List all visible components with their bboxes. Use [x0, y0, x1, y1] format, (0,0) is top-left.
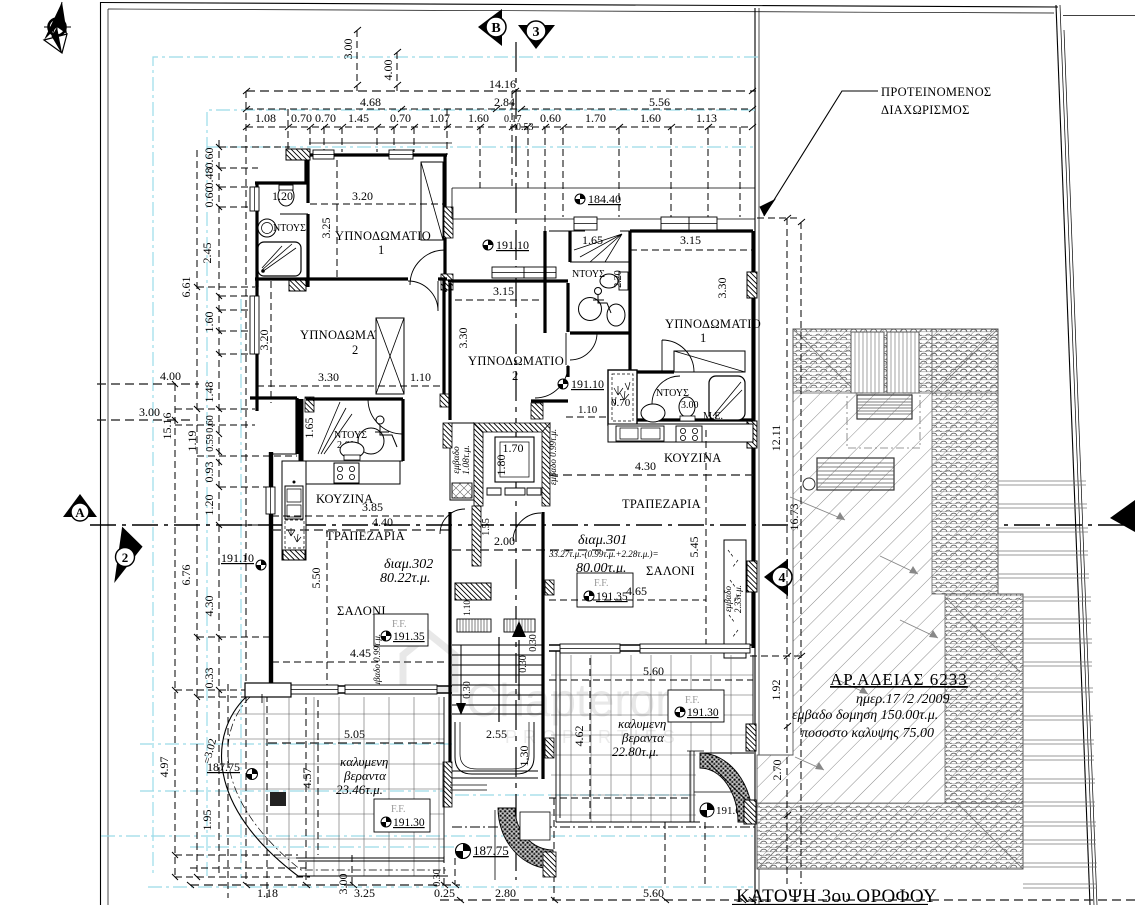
svg-text:5.45: 5.45 [687, 537, 701, 558]
svg-text:6.61: 6.61 [179, 277, 193, 298]
svg-text:187.75: 187.75 [473, 843, 509, 858]
svg-text:καλυμενη: καλυμενη [340, 754, 388, 769]
svg-text:1.10: 1.10 [578, 404, 598, 416]
svg-text:1.08τ.μ.: 1.08τ.μ. [462, 445, 472, 475]
svg-text:F.F.: F.F. [594, 578, 609, 589]
svg-text:3.00: 3.00 [341, 39, 355, 60]
svg-text:ΥΠΝΟΔΩΜΑΤΙΟ: ΥΠΝΟΔΩΜΑΤΙΟ [468, 354, 564, 368]
svg-text:καλυμενη: καλυμενη [618, 716, 666, 731]
svg-text:2.80: 2.80 [495, 886, 516, 900]
svg-text:2: 2 [352, 343, 359, 357]
svg-text:3.20: 3.20 [352, 189, 373, 203]
svg-text:1.95: 1.95 [200, 810, 214, 831]
svg-text:0.30: 0.30 [462, 681, 473, 699]
svg-text:1.70: 1.70 [503, 441, 524, 455]
svg-text:4.62: 4.62 [572, 726, 586, 747]
svg-text:4.30: 4.30 [635, 459, 656, 473]
svg-text:0.33: 0.33 [202, 668, 216, 689]
svg-text:191.35: 191.35 [596, 591, 628, 603]
svg-text:4: 4 [779, 571, 786, 586]
svg-text:1.13: 1.13 [696, 111, 717, 125]
svg-text:1.60: 1.60 [640, 111, 661, 125]
svg-text:βεραντα: βεραντα [343, 768, 387, 783]
svg-text:0.70: 0.70 [291, 111, 312, 125]
svg-text:0.70: 0.70 [611, 397, 631, 409]
svg-text:0.59: 0.59 [205, 434, 216, 452]
svg-text:3.25: 3.25 [319, 218, 333, 239]
svg-text:ΔΙΑΧΩΡΙΣΜΟΣ: ΔΙΑΧΩΡΙΣΜΟΣ [881, 103, 970, 117]
svg-text:4.65: 4.65 [626, 584, 647, 598]
svg-text:14.16: 14.16 [489, 77, 516, 91]
svg-text:ΥΠΝΟΔΩΜΑΤΙΟ: ΥΠΝΟΔΩΜΑΤΙΟ [335, 229, 431, 243]
svg-text:4.68: 4.68 [360, 95, 381, 109]
svg-text:ΝΤΟΥΣ: ΝΤΟΥΣ [656, 388, 689, 399]
svg-text:0.93: 0.93 [202, 462, 216, 483]
svg-text:4.45: 4.45 [350, 646, 371, 660]
svg-text:4.40: 4.40 [372, 515, 393, 529]
svg-text:0.60: 0.60 [202, 148, 216, 169]
svg-text:1.65: 1.65 [582, 233, 603, 247]
svg-text:εμβαδο 0.99τ.μ.: εμβαδο 0.99τ.μ. [372, 634, 382, 690]
svg-text:F.F.: F.F. [685, 695, 700, 706]
svg-text:5.56: 5.56 [649, 95, 670, 109]
svg-text:διαμ.301: διαμ.301 [578, 533, 627, 548]
svg-text:1.45: 1.45 [348, 111, 369, 125]
svg-text:ΥΠΝΟΔΩΜΑΤΙΟ: ΥΠΝΟΔΩΜΑΤΙΟ [665, 317, 761, 331]
svg-text:ΑΡ.ΑΔΕΙΑΣ 6233: ΑΡ.ΑΔΕΙΑΣ 6233 [830, 670, 968, 689]
svg-text:2.70: 2.70 [770, 760, 784, 781]
svg-text:0.60: 0.60 [202, 187, 216, 208]
svg-text:B: B [491, 21, 500, 36]
svg-text:F.F.: F.F. [391, 804, 406, 815]
svg-text:4.97: 4.97 [157, 757, 171, 778]
svg-text:2: 2 [512, 369, 519, 383]
svg-text:0.60: 0.60 [205, 415, 216, 433]
svg-text:2.45: 2.45 [200, 243, 214, 264]
svg-text:ΝΤΟΥΣ: ΝΤΟΥΣ [572, 269, 605, 280]
svg-text:191.10: 191.10 [221, 551, 254, 565]
svg-text:191.30: 191.30 [393, 817, 425, 829]
svg-text:191.10: 191.10 [496, 238, 529, 252]
svg-text:ποσοστο καλυψης 75.00: ποσοστο καλυψης 75.00 [801, 726, 934, 741]
svg-text:εμβαδο: εμβαδο [452, 446, 462, 474]
svg-text:0.25: 0.25 [434, 886, 455, 900]
svg-text:0.30: 0.30 [432, 869, 443, 887]
svg-text:3.30: 3.30 [715, 278, 729, 299]
svg-text:2.20: 2.20 [613, 270, 624, 288]
svg-text:4.57: 4.57 [300, 768, 314, 789]
svg-text:διαμ.302: διαμ.302 [384, 557, 433, 572]
svg-text:3.00: 3.00 [336, 874, 350, 895]
svg-text:1.20: 1.20 [272, 189, 293, 203]
svg-text:16.73: 16.73 [787, 504, 801, 531]
svg-text:3.85: 3.85 [362, 500, 383, 514]
svg-text:1.80: 1.80 [494, 455, 508, 476]
svg-text:βεραντα: βεραντα [621, 730, 665, 745]
svg-text:2.00: 2.00 [494, 534, 515, 548]
svg-text:33.27τ.μ.-(0.99τ.μ.+2.28τ.μ.)=: 33.27τ.μ.-(0.99τ.μ.+2.28τ.μ.)= [548, 549, 659, 559]
svg-text:ΠΡΟΤΕΙΝΟΜΕΝΟΣ: ΠΡΟΤΕΙΝΟΜΕΝΟΣ [881, 85, 991, 99]
svg-text:1.10: 1.10 [462, 600, 472, 616]
svg-text:A: A [75, 505, 85, 520]
svg-text:1.10: 1.10 [410, 370, 431, 384]
svg-text:ΚΑΤΟΨΗ 3ου ΟΡΟΦΟΥ: ΚΑΤΟΨΗ 3ου ΟΡΟΦΟΥ [736, 886, 937, 905]
svg-text:ΚΟΥΖΙΝΑ: ΚΟΥΖΙΝΑ [664, 451, 722, 465]
svg-text:εμβαδο 0.99τ.μ.: εμβαδο 0.99τ.μ. [548, 429, 558, 485]
svg-text:1.65: 1.65 [302, 418, 316, 439]
svg-text:0.53: 0.53 [516, 122, 534, 133]
svg-text:0.70: 0.70 [390, 111, 411, 125]
svg-text:3.20: 3.20 [257, 330, 271, 351]
svg-text:1.20: 1.20 [202, 495, 216, 516]
svg-text:3.30: 3.30 [456, 328, 470, 349]
svg-text:0.48: 0.48 [202, 168, 216, 189]
svg-text:ΣΑΛΟΝΙ: ΣΑΛΟΝΙ [646, 564, 695, 578]
svg-text:Μ.Ε.: Μ.Ε. [703, 411, 723, 422]
svg-text:12.11: 12.11 [769, 425, 783, 452]
svg-text:80.22τ.μ.: 80.22τ.μ. [380, 571, 431, 586]
svg-text:0.30: 0.30 [518, 655, 529, 673]
svg-text:1.55: 1.55 [481, 518, 492, 536]
svg-text:1.48: 1.48 [202, 382, 216, 403]
svg-text:5.60: 5.60 [643, 664, 664, 678]
svg-text:1.92: 1.92 [769, 680, 783, 701]
svg-text:1: 1 [378, 243, 385, 257]
svg-text:4.00: 4.00 [381, 60, 395, 81]
svg-text:5.50: 5.50 [309, 568, 323, 589]
svg-text:3.25: 3.25 [354, 886, 375, 900]
svg-text:4.30: 4.30 [202, 596, 216, 617]
svg-text:2: 2 [122, 550, 129, 565]
svg-text:191.35: 191.35 [393, 631, 425, 643]
svg-text:3.15: 3.15 [680, 233, 701, 247]
svg-text:22.80τ.μ.: 22.80τ.μ. [612, 744, 659, 759]
svg-text:F.F.: F.F. [392, 619, 407, 630]
svg-text:3.15: 3.15 [493, 284, 514, 298]
svg-text:3.00: 3.00 [681, 400, 699, 411]
svg-text:1: 1 [700, 331, 707, 345]
svg-text:1.70: 1.70 [585, 111, 606, 125]
svg-text:0.70: 0.70 [315, 111, 336, 125]
svg-text:0.30: 0.30 [528, 634, 539, 652]
svg-text:ΤΡΑΠΕΖΑΡΙΑ: ΤΡΑΠΕΖΑΡΙΑ [326, 529, 405, 543]
svg-text:5.05: 5.05 [344, 727, 365, 741]
svg-text:191.10: 191.10 [571, 377, 604, 391]
svg-text:3: 3 [533, 25, 540, 40]
svg-text:15.16: 15.16 [160, 413, 174, 440]
svg-text:6.76: 6.76 [179, 565, 193, 586]
svg-text:εμβαδο: εμβαδο [723, 586, 733, 612]
svg-text:4.00: 4.00 [160, 369, 181, 383]
svg-text:3.00: 3.00 [139, 405, 160, 419]
svg-text:3.30: 3.30 [318, 370, 339, 384]
svg-text:εμβαδο δομηση 150.00τ.μ.: εμβαδο δομηση 150.00τ.μ. [792, 708, 938, 723]
svg-text:ημερ.17 /2 /2009: ημερ.17 /2 /2009 [856, 692, 950, 707]
svg-text:1.30: 1.30 [517, 746, 531, 767]
svg-text:2.55: 2.55 [486, 727, 507, 741]
svg-text:1.19: 1.19 [185, 431, 199, 452]
svg-text:184.40: 184.40 [588, 192, 621, 206]
svg-text:1.60: 1.60 [468, 111, 489, 125]
svg-text:191.30: 191.30 [687, 707, 719, 719]
svg-text:2.33τ.μ.: 2.33τ.μ. [733, 585, 743, 613]
svg-text:ΝΤΟΥΣ: ΝΤΟΥΣ [273, 223, 306, 234]
svg-text:ΤΡΑΠΕΖΑΡΙΑ: ΤΡΑΠΕΖΑΡΙΑ [622, 497, 701, 511]
svg-text:1.08: 1.08 [255, 111, 276, 125]
svg-text:23.46τ.μ.: 23.46τ.μ. [336, 782, 383, 797]
svg-text:5.60: 5.60 [643, 886, 664, 900]
svg-text:0.60: 0.60 [540, 111, 561, 125]
svg-text:1.60: 1.60 [202, 312, 216, 333]
